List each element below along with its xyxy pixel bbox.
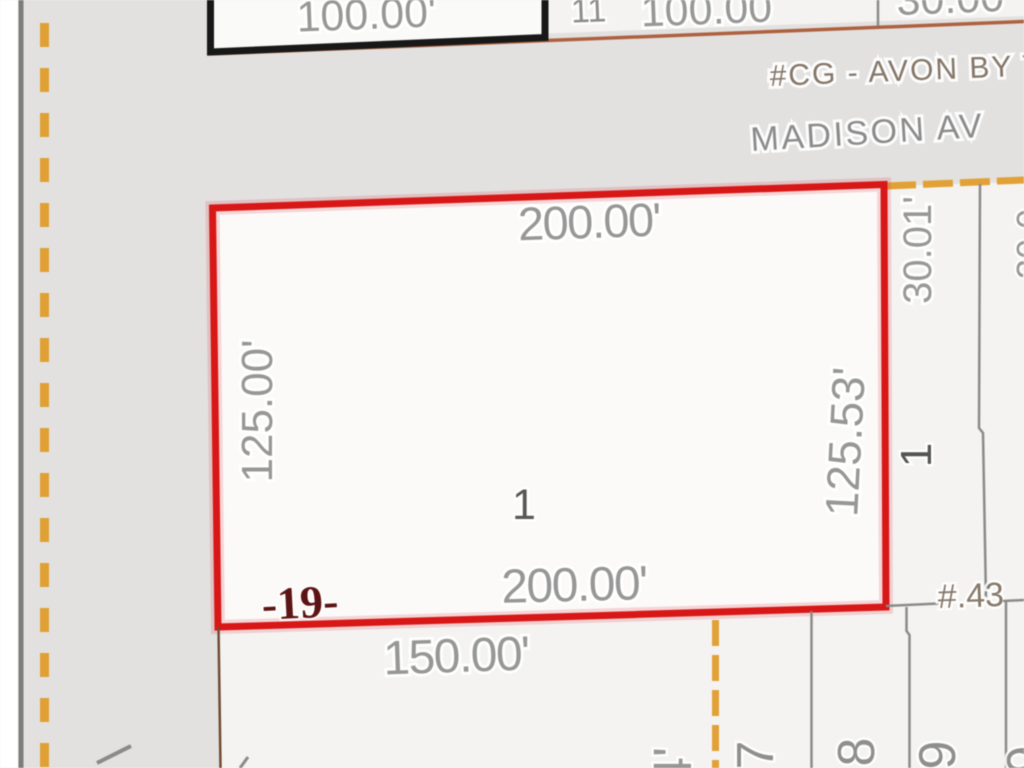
svg-text:11: 11 <box>570 0 607 31</box>
svg-text:9: 9 <box>997 746 1024 768</box>
svg-text:200.00': 200.00' <box>501 557 648 614</box>
svg-text:150.00': 150.00' <box>382 627 529 685</box>
svg-text:125.53': 125.53' <box>815 366 875 518</box>
svg-text:9: 9 <box>909 741 967 768</box>
svg-text:30.00: 30.00 <box>896 0 1005 25</box>
svg-text:4': 4' <box>643 747 703 768</box>
svg-text:7: 7 <box>727 741 785 768</box>
svg-text:125.00': 125.00' <box>233 340 282 483</box>
svg-text:1: 1 <box>892 443 941 467</box>
svg-text:100.00': 100.00' <box>296 0 437 42</box>
svg-text:200.00': 200.00' <box>517 192 661 250</box>
svg-text:#.43: #.43 <box>937 576 1004 616</box>
svg-text:30.01': 30.01' <box>896 196 940 304</box>
svg-text:100.00: 100.00 <box>640 0 773 37</box>
svg-text:1: 1 <box>512 481 536 529</box>
svg-text:30.0: 30.0 <box>1009 209 1024 279</box>
svg-text:-19-: -19- <box>260 575 339 630</box>
svg-text:8: 8 <box>828 738 886 767</box>
